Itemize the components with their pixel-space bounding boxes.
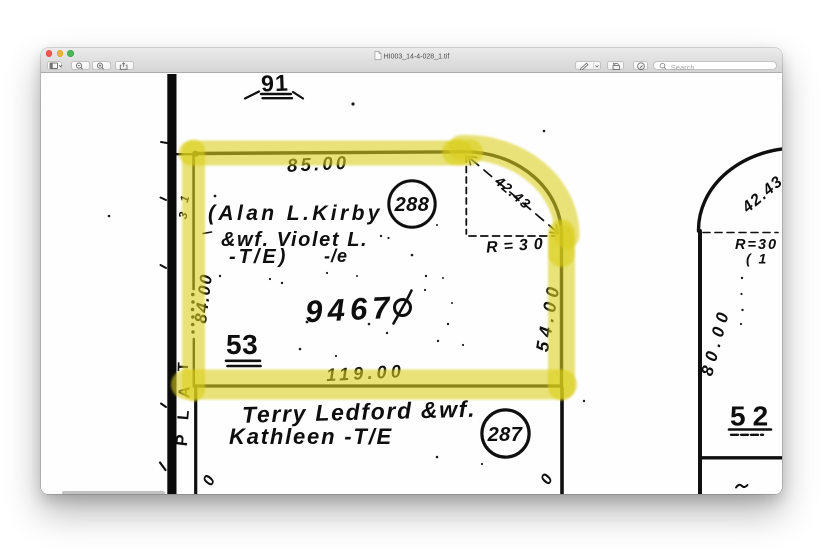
svg-text:91: 91: [261, 74, 289, 96]
svg-text:-/e: -/e: [324, 246, 348, 266]
svg-text:R=30: R=30: [486, 235, 550, 256]
svg-text:0: 0: [538, 471, 557, 488]
svg-text:0: 0: [200, 473, 219, 489]
svg-text:Kathleen -T/E: Kathleen -T/E: [229, 424, 393, 449]
svg-text:( 1: ( 1: [746, 251, 768, 267]
svg-text:80.00: 80.00: [697, 305, 733, 378]
svg-text:L: L: [175, 409, 193, 420]
svg-text:288: 288: [394, 194, 430, 216]
svg-text:52: 52: [730, 401, 775, 432]
svg-text:(Alan L.Kirby: (Alan L.Kirby: [208, 202, 383, 225]
svg-text:P: P: [172, 434, 192, 448]
svg-text:-T/E): -T/E): [229, 246, 288, 268]
svg-text:Terry Ledford &wf.: Terry Ledford &wf.: [242, 396, 477, 428]
svg-text:42.43: 42.43: [739, 173, 782, 217]
svg-text:287: 287: [487, 424, 523, 446]
svg-text:9467: 9467: [304, 290, 395, 330]
svg-text:53: 53: [226, 329, 258, 360]
